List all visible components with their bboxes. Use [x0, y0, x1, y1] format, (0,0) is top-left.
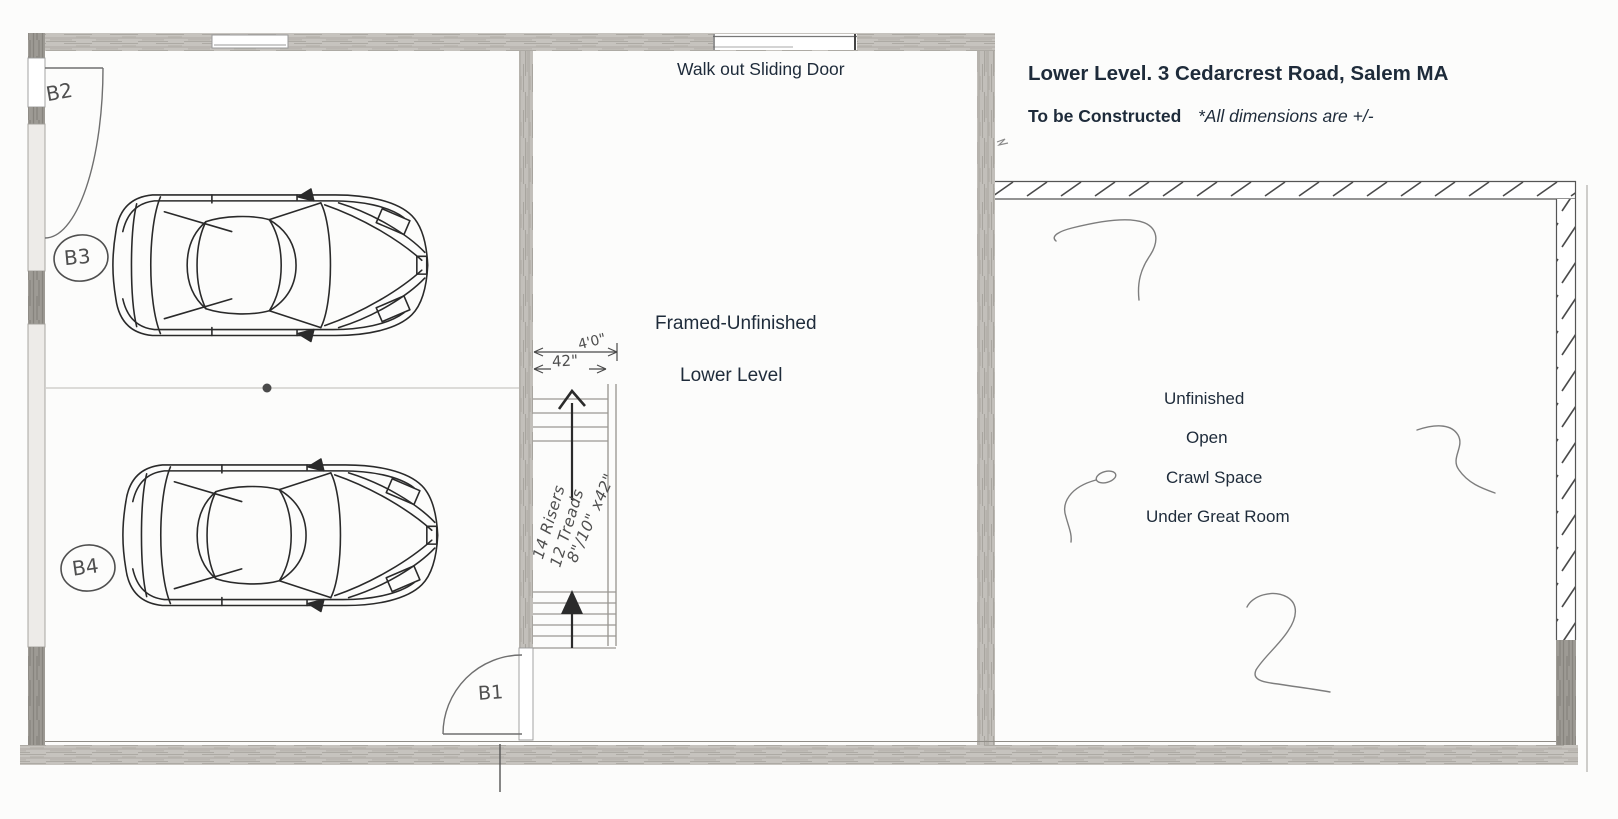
right-room-label-line4: Under Great Room [1146, 507, 1290, 527]
bottom-wall [20, 745, 1578, 765]
pencil-squiggles [1054, 220, 1495, 692]
top-wall-window [212, 35, 288, 48]
right-room-right-wall [1556, 181, 1576, 745]
squiggle-top [1054, 220, 1156, 300]
center-room-label-line2: Lower Level [680, 365, 782, 387]
door-tag-b3: B3 [63, 244, 91, 270]
right-room-top-wall [995, 181, 1576, 199]
left-wall-segment [28, 271, 45, 324]
walls [20, 33, 1587, 792]
plan-dimensions-note: *All dimensions are +/- [1198, 106, 1374, 127]
floor-plan-drawing [0, 0, 1618, 819]
squiggle-bottom [1247, 594, 1330, 692]
door-tag-circles [51, 231, 117, 593]
squiggle-hook [1065, 469, 1117, 542]
right-room-label-line2: Open [1186, 428, 1228, 448]
left-wall-segment [28, 124, 45, 271]
door-opening-b1 [519, 648, 533, 740]
door-tag-b2: B2 [44, 78, 74, 106]
plan-title: Lower Level. 3 Cedarcrest Road, Salem MA [1028, 62, 1448, 86]
car-top-view-2 [123, 459, 438, 611]
plan-status: To be Constructed [1028, 106, 1181, 127]
center-right-divider-wall [977, 51, 995, 745]
left-wall-door-opening-b2 [28, 58, 45, 107]
stair-treads-upper [533, 399, 608, 441]
garage-bay-divider [45, 384, 519, 393]
stair-direction-arrow-lower [561, 590, 583, 648]
right-room-label-line3: Crawl Space [1166, 468, 1262, 488]
car-top-view-1 [113, 189, 428, 341]
door-tag-b4: B4 [70, 553, 100, 580]
stair-stringer [608, 384, 616, 646]
center-room-label-line1: Framed-Unfinished [655, 313, 817, 335]
door-swings [45, 68, 522, 734]
stair-dim-inner: 42" [552, 351, 579, 370]
stair-direction-arrow-upper [559, 391, 585, 500]
left-wall-segment [28, 324, 45, 647]
sliding-door-label: Walk out Sliding Door [677, 59, 845, 80]
floor-plan-page: Lower Level. 3 Cedarcrest Road, Salem MA… [0, 0, 1618, 819]
sliding-door-opening [713, 34, 857, 50]
door-tag-b1: B1 [477, 681, 504, 705]
left-wall-segment [28, 107, 45, 124]
squiggle-right [1417, 426, 1495, 493]
left-wall-segment [28, 33, 45, 58]
garage-divider-wall [519, 51, 533, 648]
right-room-label-line1: Unfinished [1164, 389, 1244, 409]
pencil-mark [997, 139, 1008, 145]
